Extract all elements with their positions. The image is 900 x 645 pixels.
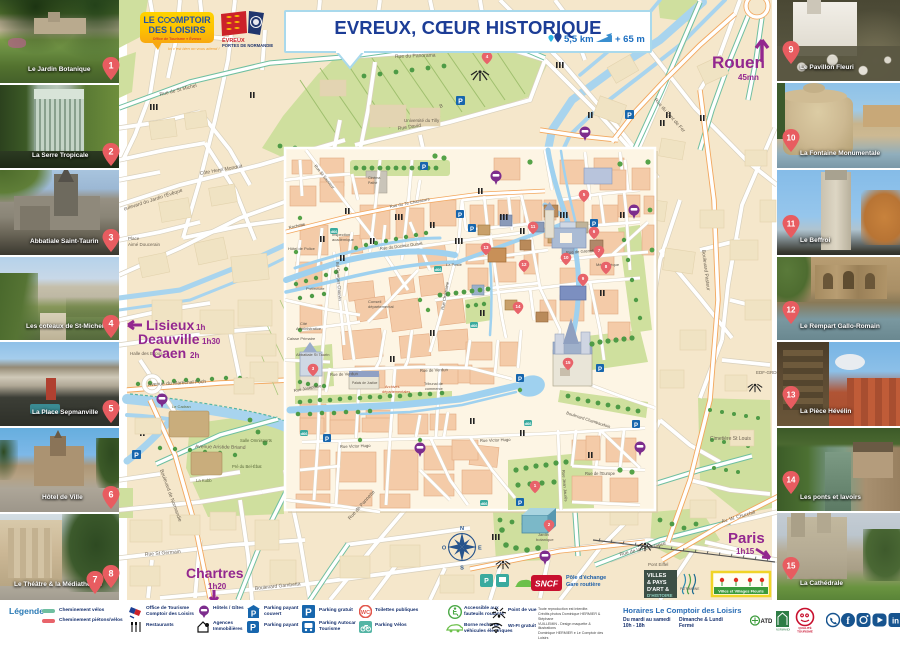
svg-text:Caisse Primaire: Caisse Primaire	[287, 336, 316, 341]
svg-text:P: P	[634, 423, 638, 429]
svg-text:départementales: départementales	[382, 390, 410, 394]
svg-text:1: 1	[108, 61, 113, 71]
svg-text:P: P	[470, 227, 474, 233]
svg-text:Rue de l'Europe: Rue de l'Europe	[585, 471, 616, 476]
svg-text:botanique: botanique	[536, 537, 554, 542]
svg-text:+ 65 m: + 65 m	[615, 34, 645, 45]
svg-text:Place: Place	[128, 236, 140, 241]
svg-text:10: 10	[787, 134, 796, 143]
svg-text:La Kubb: La Kubb	[196, 478, 212, 483]
svg-text:d66: d66	[435, 267, 443, 272]
svg-text:d66: d66	[301, 431, 309, 436]
svg-text:Salle Omnisports: Salle Omnisports	[240, 438, 272, 443]
svg-text:Aimé Doucerain: Aimé Doucerain	[128, 242, 161, 247]
svg-text:Rouen: Rouen	[712, 53, 765, 72]
svg-text:D'HISTOIRE: D'HISTOIRE	[647, 593, 673, 598]
svg-text:1h15: 1h15	[736, 547, 755, 556]
svg-text:P: P	[250, 623, 256, 633]
svg-text:Administrative: Administrative	[296, 326, 322, 331]
svg-text:Villes et Villages Fleuris: Villes et Villages Fleuris	[718, 589, 764, 594]
svg-text:S: S	[460, 565, 464, 571]
svg-text:2h: 2h	[190, 351, 199, 360]
svg-text:P: P	[458, 213, 462, 219]
svg-text:WC: WC	[361, 610, 370, 616]
svg-text:P: P	[458, 98, 463, 105]
svg-text:commerce: commerce	[425, 387, 443, 391]
svg-text:12: 12	[787, 306, 796, 315]
svg-text:Cinéma: Cinéma	[368, 176, 380, 180]
svg-text:Hôtel de Police: Hôtel de Police	[288, 246, 316, 251]
svg-text:Avenue Aristide Briand: Avenue Aristide Briand	[195, 444, 246, 451]
svg-text:Préfecture: Préfecture	[306, 286, 325, 291]
svg-text:P: P	[325, 437, 329, 443]
svg-text:TOURISME: TOURISME	[797, 630, 813, 634]
svg-text:P: P	[518, 501, 522, 507]
svg-text:11: 11	[531, 224, 536, 229]
svg-text:11: 11	[787, 220, 796, 229]
svg-text:d66: d66	[481, 501, 489, 506]
svg-text:P: P	[598, 367, 602, 373]
svg-text:PORTES DE NORMANDIE: PORTES DE NORMANDIE	[222, 43, 273, 47]
svg-text:Pathé: Pathé	[368, 181, 377, 185]
svg-text:NORMANDIE: NORMANDIE	[776, 628, 790, 632]
svg-text:9: 9	[788, 45, 793, 55]
svg-text:8: 8	[108, 569, 113, 579]
svg-text:P: P	[422, 165, 426, 171]
svg-text:5: 5	[108, 404, 113, 414]
svg-text:Gare routière: Gare routière	[566, 582, 601, 588]
svg-text:& PAYS: & PAYS	[647, 580, 667, 586]
svg-text:14: 14	[515, 304, 521, 309]
svg-text:6: 6	[108, 490, 113, 500]
svg-text:P: P	[251, 610, 257, 619]
svg-text:10: 10	[563, 255, 569, 260]
svg-text:O: O	[442, 545, 447, 551]
svg-text:Caen: Caen	[152, 345, 186, 361]
svg-text:P: P	[305, 608, 312, 619]
svg-text:La Poste: La Poste	[446, 262, 463, 267]
svg-text:15: 15	[565, 360, 571, 365]
svg-text:Université du Tilly: Université du Tilly	[404, 118, 440, 123]
svg-text:Rue de Verdun: Rue de Verdun	[420, 367, 449, 373]
svg-text:12: 12	[521, 262, 527, 267]
svg-text:13: 13	[483, 245, 489, 250]
svg-text:PATRIMOINE: PATRIMOINE	[680, 587, 699, 591]
svg-text:VILLES: VILLES	[647, 573, 667, 579]
svg-text:15: 15	[787, 562, 796, 571]
svg-text:Archives: Archives	[385, 385, 400, 389]
svg-text:5,5 km: 5,5 km	[564, 34, 594, 45]
svg-text:7: 7	[92, 575, 97, 585]
svg-text:Palais de Justice: Palais de Justice	[352, 381, 378, 385]
svg-text:ATD: ATD	[761, 619, 773, 625]
svg-text:P: P	[134, 452, 139, 459]
svg-text:3: 3	[108, 233, 113, 243]
svg-text:d66: d66	[525, 421, 533, 426]
svg-text:académique: académique	[332, 237, 355, 242]
svg-text:départemental: départemental	[368, 304, 394, 309]
svg-text:P: P	[627, 112, 632, 119]
svg-text:EDF-GRDF: EDF-GRDF	[756, 370, 779, 375]
svg-text:SNCF: SNCF	[535, 579, 559, 589]
svg-text:1h20: 1h20	[208, 582, 227, 591]
svg-text:WIFI: WIFI	[489, 622, 495, 626]
svg-text:in: in	[892, 617, 899, 626]
svg-text:45mn: 45mn	[738, 73, 759, 82]
svg-text:13: 13	[787, 391, 796, 400]
svg-text:4: 4	[108, 319, 113, 329]
svg-text:P: P	[484, 578, 489, 585]
svg-text:Tribunal de: Tribunal de	[424, 382, 443, 386]
svg-text:Pôle d'échange: Pôle d'échange	[566, 575, 606, 581]
svg-text:Paris: Paris	[728, 530, 765, 547]
svg-text:Abbatiale St Taurin: Abbatiale St Taurin	[296, 352, 330, 357]
svg-text:E: E	[478, 545, 482, 551]
svg-text:2: 2	[108, 147, 113, 157]
svg-text:Pré du Bel-Ébat: Pré du Bel-Ébat	[232, 464, 262, 469]
svg-text:Le Cadran: Le Cadran	[172, 404, 191, 409]
svg-text:d66: d66	[471, 323, 479, 328]
svg-text:1h30: 1h30	[202, 337, 221, 346]
svg-text:N: N	[460, 526, 464, 532]
svg-text:14: 14	[787, 476, 796, 485]
svg-text:Rue de Verdun: Rue de Verdun	[330, 371, 359, 377]
svg-text:P: P	[518, 377, 522, 383]
svg-text:Pont Eiffel: Pont Eiffel	[648, 562, 668, 567]
svg-text:Cimetière St Louis: Cimetière St Louis	[710, 436, 751, 442]
svg-text:Chartres: Chartres	[186, 565, 244, 581]
